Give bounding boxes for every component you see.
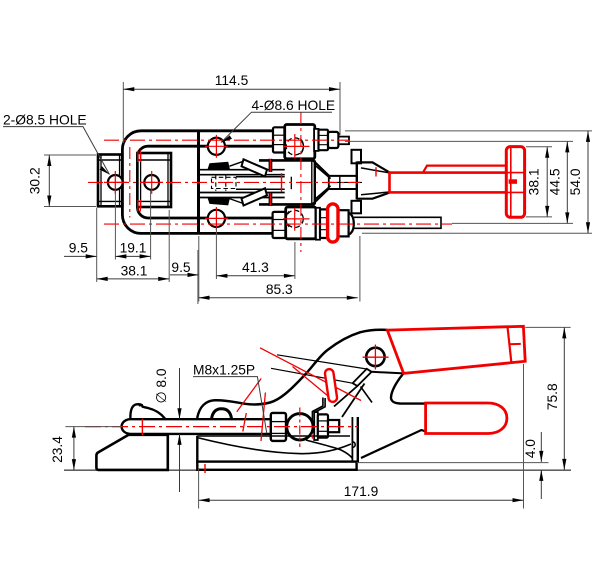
svg-text:9.5: 9.5 bbox=[69, 241, 89, 256]
svg-text:30.2: 30.2 bbox=[28, 167, 43, 194]
svg-text:44.5: 44.5 bbox=[548, 168, 563, 195]
svg-text:19.1: 19.1 bbox=[120, 241, 147, 256]
svg-text:171.9: 171.9 bbox=[344, 484, 379, 499]
svg-text:85.3: 85.3 bbox=[266, 282, 293, 297]
svg-text:4.0: 4.0 bbox=[523, 439, 538, 459]
svg-text:M8x1.25P: M8x1.25P bbox=[193, 363, 255, 378]
svg-text:75.8: 75.8 bbox=[545, 383, 560, 410]
svg-text:4-Ø8.6 HOLE: 4-Ø8.6 HOLE bbox=[252, 98, 336, 113]
svg-text:∅ 8.0: ∅ 8.0 bbox=[154, 368, 169, 403]
svg-text:114.5: 114.5 bbox=[215, 73, 249, 88]
svg-text:9.5: 9.5 bbox=[171, 260, 191, 275]
svg-text:38.1: 38.1 bbox=[527, 168, 542, 195]
svg-text:38.1: 38.1 bbox=[121, 263, 148, 278]
svg-text:54.0: 54.0 bbox=[568, 168, 583, 195]
svg-text:23.4: 23.4 bbox=[50, 436, 65, 463]
svg-text:41.3: 41.3 bbox=[242, 260, 269, 275]
svg-text:2-Ø8.5 HOLE: 2-Ø8.5 HOLE bbox=[3, 113, 87, 128]
